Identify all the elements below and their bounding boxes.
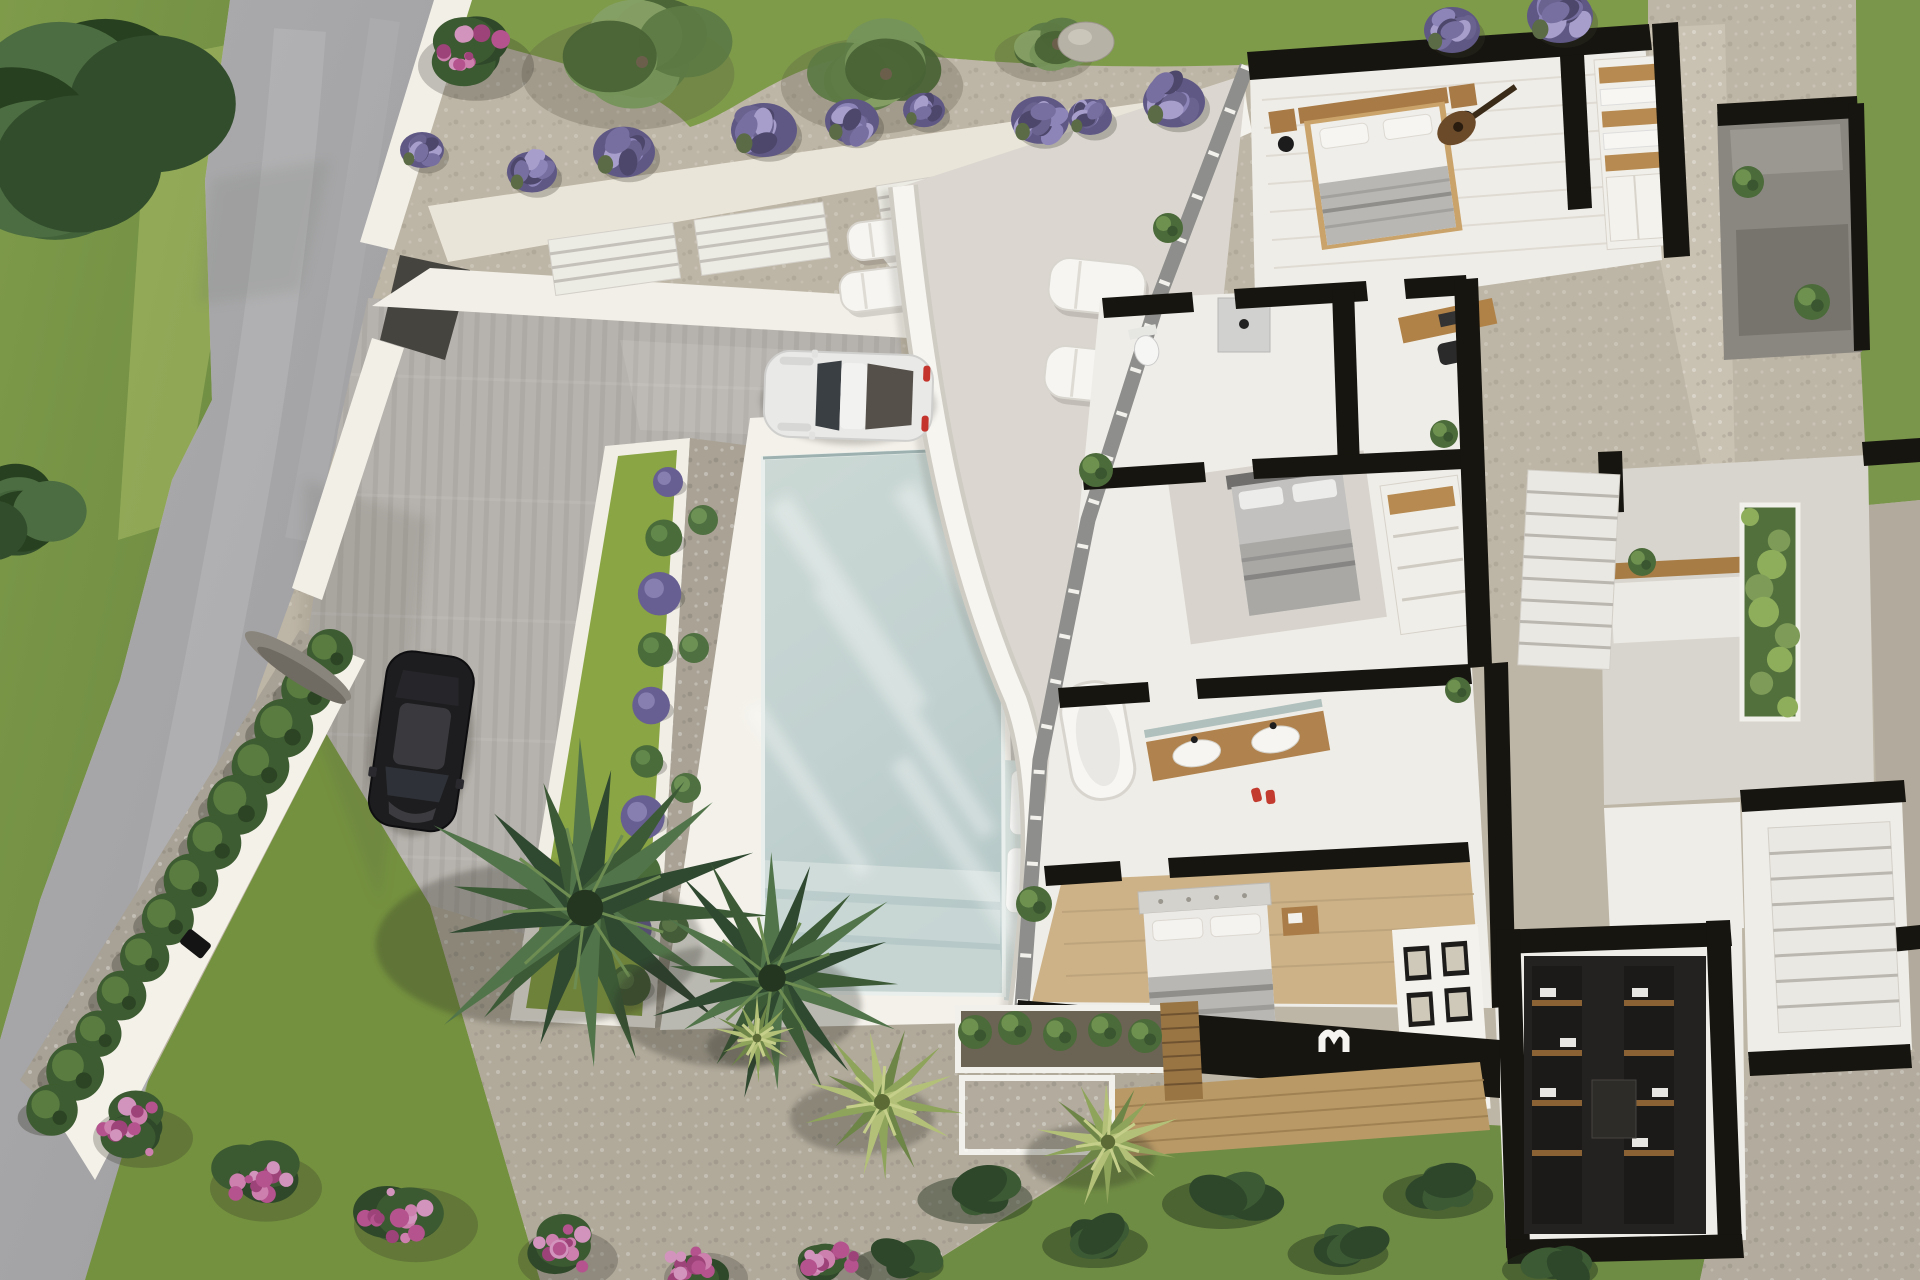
shower-head-icon xyxy=(1239,319,1249,329)
planter-shrub xyxy=(1128,1019,1162,1053)
pillow xyxy=(1152,918,1203,941)
nightstand xyxy=(1268,109,1297,134)
car-roof xyxy=(839,363,867,430)
green-shrub xyxy=(671,773,701,803)
wood-slat-screen xyxy=(1160,1001,1203,1101)
potted-plant xyxy=(1079,453,1113,487)
potted-plant xyxy=(1732,166,1764,198)
potted-plant xyxy=(1794,284,1830,320)
side-mirror xyxy=(812,350,818,358)
rock xyxy=(1058,22,1114,62)
stair-steps xyxy=(1518,470,1620,670)
vertical-garden xyxy=(1741,505,1800,719)
taillight xyxy=(921,415,929,431)
side-mirror xyxy=(455,779,464,790)
potted-plant xyxy=(1430,420,1458,448)
garage-wall-panel xyxy=(1611,577,1744,644)
glass-roof xyxy=(392,702,452,771)
pillow xyxy=(1210,914,1261,937)
walk-in-closet xyxy=(1524,956,1706,1234)
aerial-render xyxy=(0,0,1920,1280)
stair-steps xyxy=(1768,822,1901,1033)
pergola-frame xyxy=(1736,224,1851,336)
potted-plant xyxy=(1628,548,1656,576)
planter-shrub xyxy=(998,1011,1032,1045)
potted-plant xyxy=(1153,213,1183,243)
planter-shrub xyxy=(1043,1017,1077,1051)
slipper xyxy=(1265,790,1275,805)
nightstand xyxy=(1449,83,1478,108)
green-shrub xyxy=(688,505,718,535)
white-sports-car xyxy=(759,348,938,448)
side-mirror xyxy=(368,766,377,777)
floor-hall xyxy=(1604,802,1744,935)
rear-glass xyxy=(865,364,913,432)
planter-shrub xyxy=(958,1015,992,1049)
closet-island xyxy=(1592,1080,1636,1138)
potted-plant xyxy=(1445,677,1471,703)
scene-canvas xyxy=(0,0,1920,1280)
windshield xyxy=(815,360,841,431)
planter-shrub xyxy=(1088,1013,1122,1047)
potted-plant xyxy=(1016,886,1052,922)
book xyxy=(1288,913,1303,924)
side-mirror xyxy=(809,432,815,440)
vertical-garden-strip xyxy=(1741,505,1800,719)
green-shrub xyxy=(679,633,709,663)
taillight xyxy=(923,366,931,382)
